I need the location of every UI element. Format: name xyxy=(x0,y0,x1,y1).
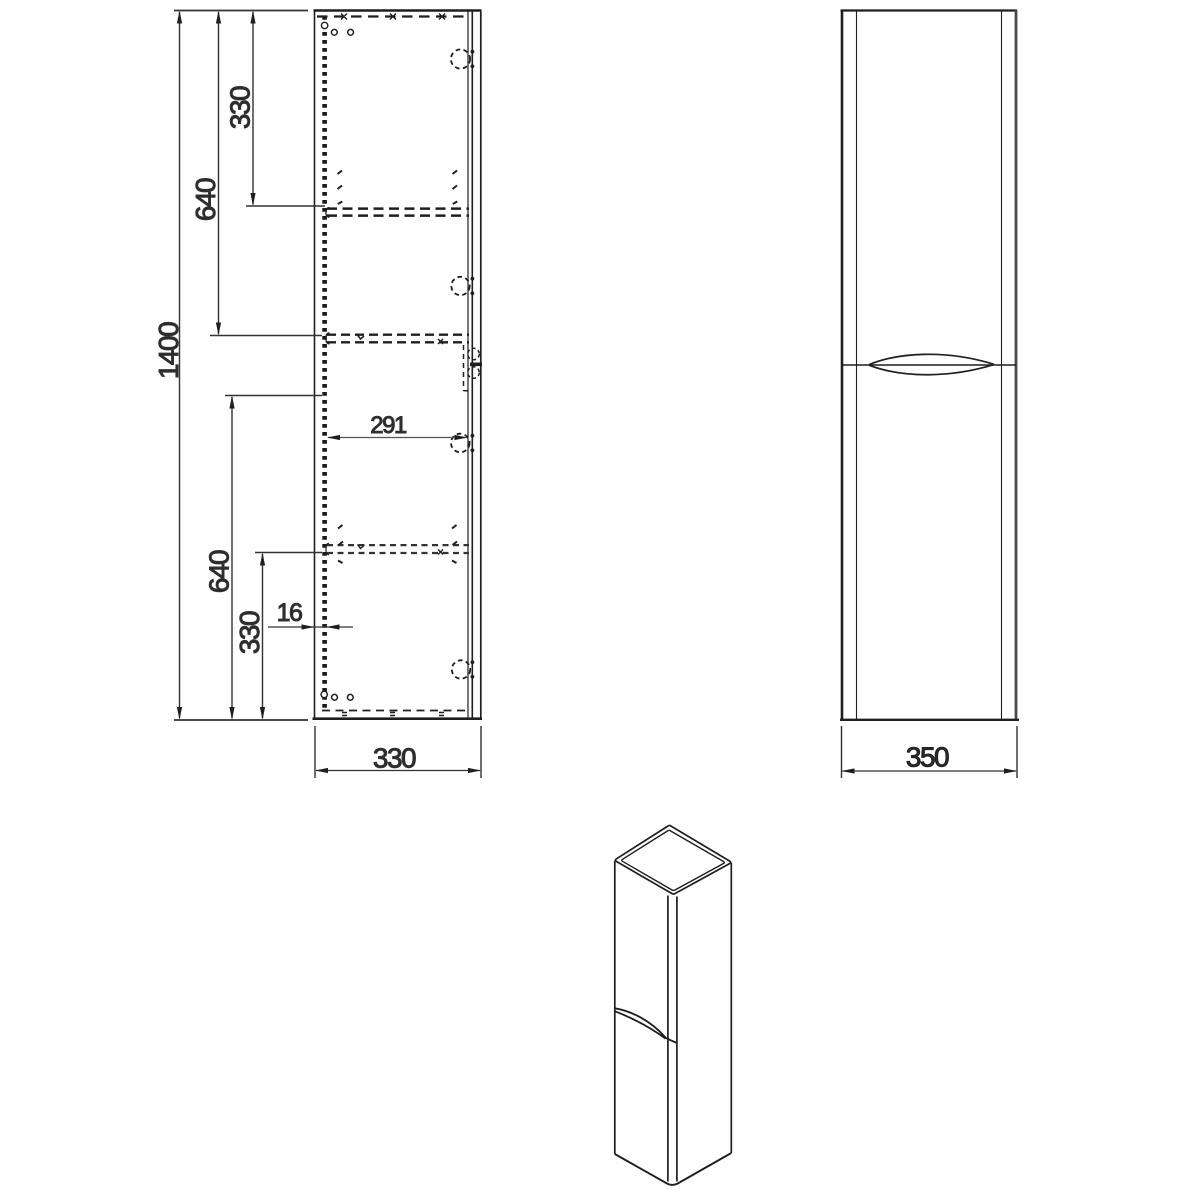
svg-text:330: 330 xyxy=(234,611,265,654)
svg-text:330: 330 xyxy=(225,86,256,129)
svg-text:640: 640 xyxy=(190,178,221,221)
svg-text:16: 16 xyxy=(277,599,302,627)
svg-text:350: 350 xyxy=(906,742,949,773)
svg-text:330: 330 xyxy=(373,743,416,774)
svg-text:1400: 1400 xyxy=(153,322,184,379)
svg-text:291: 291 xyxy=(370,412,407,439)
svg-text:640: 640 xyxy=(204,550,235,593)
